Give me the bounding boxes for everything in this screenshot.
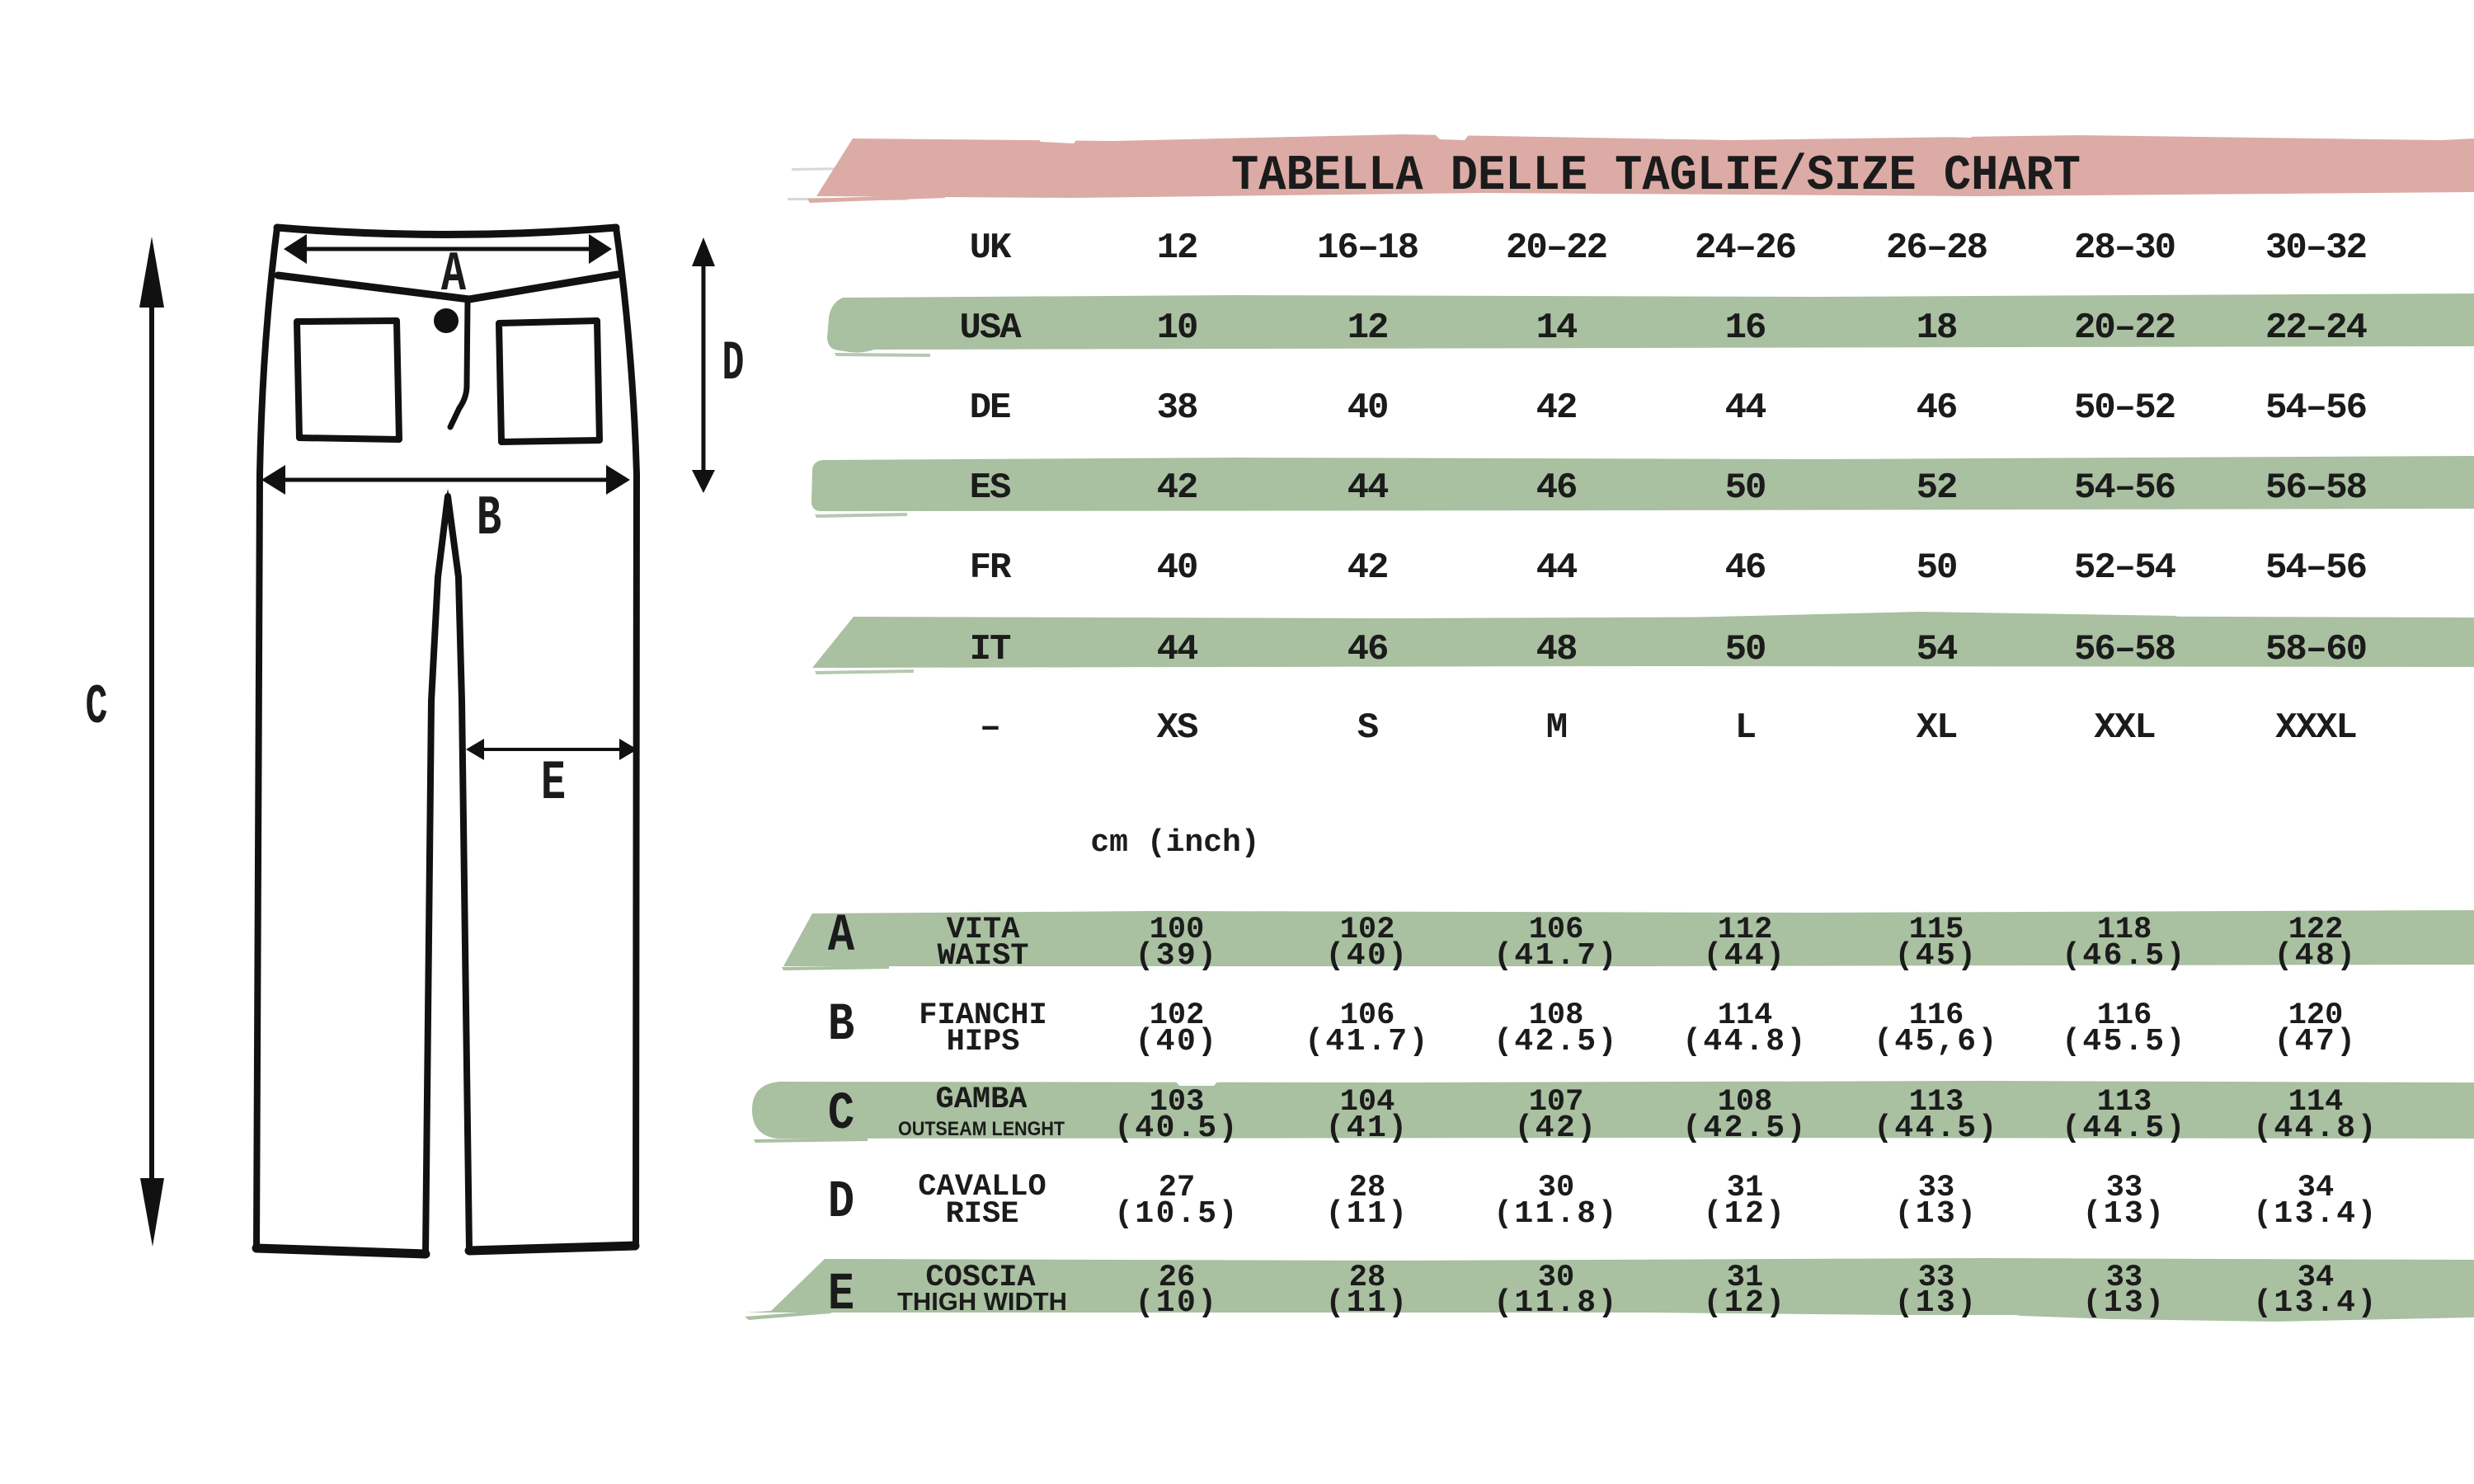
svg-text:(44.5): (44.5)	[2062, 1111, 2187, 1146]
svg-text:16–18: 16–18	[1317, 228, 1418, 269]
svg-text:RISE: RISE	[946, 1197, 1019, 1232]
svg-text:IT: IT	[970, 629, 1011, 670]
svg-text:20–22: 20–22	[1506, 228, 1606, 269]
svg-text:24–26: 24–26	[1695, 228, 1795, 269]
svg-text:E: E	[541, 751, 566, 815]
svg-text:(13.4): (13.4)	[2253, 1196, 2378, 1232]
svg-text:(13): (13)	[2082, 1196, 2166, 1232]
svg-text:(44.8): (44.8)	[1682, 1024, 1808, 1059]
svg-text:52–54: 52–54	[2074, 547, 2176, 589]
svg-text:(13): (13)	[1894, 1285, 1978, 1321]
svg-text:XXL: XXL	[2094, 707, 2155, 749]
svg-text:12: 12	[1157, 228, 1197, 269]
svg-text:(41): (41)	[1325, 1111, 1409, 1146]
svg-text:OUTSEAM LENGHT: OUTSEAM LENGHT	[898, 1118, 1065, 1140]
svg-text:(11): (11)	[1325, 1196, 1409, 1232]
svg-text:FR: FR	[970, 547, 1012, 589]
svg-text:XS: XS	[1157, 707, 1198, 749]
svg-text:42: 42	[1348, 547, 1388, 589]
svg-text:UK: UK	[970, 228, 1012, 269]
svg-text:(42): (42)	[1514, 1111, 1597, 1146]
svg-text:E: E	[828, 1265, 854, 1325]
svg-text:C: C	[828, 1084, 854, 1144]
svg-text:C: C	[86, 677, 108, 740]
svg-text:(12): (12)	[1703, 1285, 1786, 1321]
svg-text:M: M	[1546, 707, 1567, 749]
svg-text:B: B	[828, 995, 854, 1055]
svg-text:A: A	[441, 242, 466, 306]
svg-text:50–52: 50–52	[2074, 387, 2175, 429]
svg-text:(11.8): (11.8)	[1493, 1196, 1619, 1232]
svg-text:56–58: 56–58	[2265, 467, 2367, 509]
svg-text:(12): (12)	[1703, 1196, 1786, 1232]
svg-text:DE: DE	[970, 387, 1010, 429]
svg-text:50: 50	[1917, 547, 1957, 589]
svg-text:12: 12	[1348, 308, 1388, 349]
svg-text:46: 46	[1536, 467, 1577, 509]
svg-text:50: 50	[1725, 629, 1766, 670]
svg-text:L: L	[1735, 707, 1756, 749]
svg-text:HIPS: HIPS	[947, 1025, 1020, 1059]
svg-text:(47): (47)	[2274, 1024, 2357, 1059]
svg-text:38: 38	[1157, 387, 1197, 429]
svg-text:46: 46	[1917, 387, 1957, 429]
svg-text:(10.5): (10.5)	[1114, 1196, 1239, 1232]
svg-text:48: 48	[1536, 629, 1577, 670]
svg-text:B: B	[477, 486, 501, 550]
svg-text:GAMBA: GAMBA	[935, 1082, 1028, 1117]
svg-text:18: 18	[1917, 308, 1957, 349]
svg-text:A: A	[828, 906, 855, 966]
svg-text:–: –	[980, 707, 999, 749]
svg-text:THIGH WIDTH: THIGH WIDTH	[897, 1287, 1067, 1316]
svg-text:52: 52	[1917, 467, 1957, 509]
svg-text:(41.7): (41.7)	[1493, 938, 1619, 974]
svg-text:WAIST: WAIST	[937, 939, 1028, 974]
svg-text:26–28: 26–28	[1886, 228, 1987, 269]
svg-text:46: 46	[1725, 547, 1766, 589]
svg-text:(45,6): (45,6)	[1874, 1024, 1999, 1059]
svg-text:(40): (40)	[1135, 1024, 1218, 1059]
svg-text:44: 44	[1348, 467, 1389, 509]
svg-text:40: 40	[1348, 387, 1388, 429]
svg-text:44: 44	[1536, 547, 1578, 589]
svg-text:40: 40	[1157, 547, 1197, 589]
svg-text:14: 14	[1536, 308, 1578, 349]
svg-text:(11): (11)	[1325, 1285, 1409, 1321]
svg-text:(44.5): (44.5)	[1874, 1111, 1999, 1146]
svg-text:54: 54	[1917, 629, 1958, 670]
svg-text:(13): (13)	[2082, 1285, 2166, 1321]
svg-text:54–56: 54–56	[2074, 467, 2175, 509]
svg-text:28–30: 28–30	[2074, 228, 2175, 269]
svg-text:(39): (39)	[1135, 938, 1218, 974]
svg-text:42: 42	[1536, 387, 1577, 429]
svg-text:ES: ES	[970, 467, 1011, 509]
svg-text:(42.5): (42.5)	[1682, 1111, 1808, 1146]
svg-text:XXXL: XXXL	[2275, 707, 2356, 749]
svg-text:(46.5): (46.5)	[2062, 938, 2187, 974]
svg-text:46: 46	[1348, 629, 1388, 670]
svg-text:54–56: 54–56	[2265, 387, 2366, 429]
svg-text:cm (inch): cm (inch)	[1090, 825, 1259, 861]
svg-text:10: 10	[1157, 308, 1197, 349]
svg-text:(44.8): (44.8)	[2253, 1111, 2378, 1146]
svg-text:(13.4): (13.4)	[2253, 1285, 2378, 1321]
svg-text:22–24: 22–24	[2265, 308, 2368, 349]
svg-text:TABELLA DELLE TAGLIE/SIZE CHAR: TABELLA DELLE TAGLIE/SIZE CHART	[1231, 148, 2081, 204]
svg-text:(11.8): (11.8)	[1493, 1285, 1619, 1321]
svg-text:D: D	[722, 333, 745, 397]
svg-text:(45.5): (45.5)	[2062, 1024, 2187, 1059]
svg-text:(44): (44)	[1703, 938, 1786, 974]
svg-text:(45): (45)	[1894, 938, 1978, 974]
svg-text:54–56: 54–56	[2265, 547, 2366, 589]
svg-text:58–60: 58–60	[2265, 629, 2366, 670]
svg-text:(13): (13)	[1894, 1196, 1978, 1232]
svg-text:(40.5): (40.5)	[1114, 1111, 1239, 1146]
svg-text:30–32: 30–32	[2265, 228, 2366, 269]
svg-text:(10): (10)	[1135, 1285, 1218, 1321]
svg-text:(48): (48)	[2274, 938, 2357, 974]
svg-text:16: 16	[1725, 308, 1766, 349]
svg-text:56–58: 56–58	[2074, 629, 2175, 670]
svg-text:50: 50	[1725, 467, 1766, 509]
svg-text:42: 42	[1157, 467, 1197, 509]
svg-text:S: S	[1357, 707, 1379, 749]
svg-text:(42.5): (42.5)	[1493, 1024, 1619, 1059]
svg-text:D: D	[828, 1172, 854, 1233]
svg-text:(40): (40)	[1325, 938, 1409, 974]
svg-text:XL: XL	[1917, 707, 1957, 749]
svg-text:USA: USA	[959, 308, 1022, 349]
svg-text:44: 44	[1725, 387, 1766, 429]
svg-text:44: 44	[1157, 629, 1198, 670]
svg-text:(41.7): (41.7)	[1305, 1024, 1430, 1059]
svg-text:20–22: 20–22	[2074, 308, 2175, 349]
